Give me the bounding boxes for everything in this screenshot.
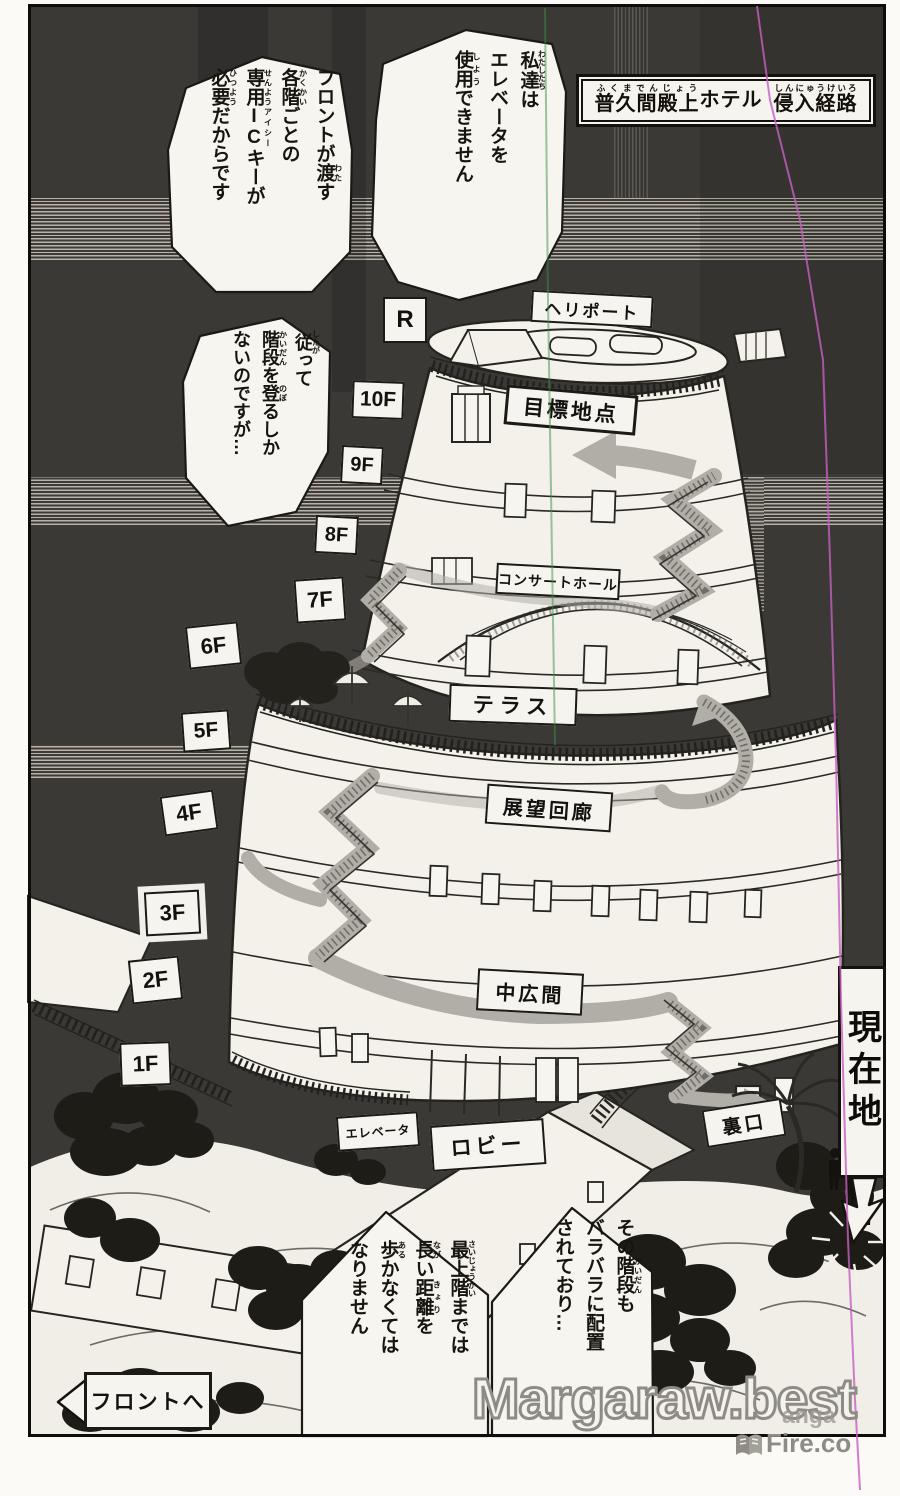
floor-label-1F: 1F <box>119 1041 172 1087</box>
watermark-site: Fire.co <box>734 1428 851 1459</box>
label-heliport: ヘリポート <box>530 290 654 328</box>
speech-bubble-ic-key: フロントが渡わたす各階かくかいごとの専用せんようICアイシーキーが必要ひつようだ… <box>176 68 344 290</box>
floor-label-3F: 3F <box>144 890 201 937</box>
floor-label-4F: 4F <box>159 789 218 836</box>
speech-bubble-stairs: 従したがって階段かいだんを登のぼるしかないのですが… <box>190 330 322 522</box>
manga-page: 普久間殿上ふくまでんじょうホテル 侵入経路しんにゅうけいろ R 10F 9F 8… <box>0 0 900 1496</box>
floor-label-6F: 6F <box>185 621 242 669</box>
label-current-location: 現在地 <box>838 966 886 1178</box>
label-terrace: テラス <box>448 684 577 726</box>
page-title: 普久間殿上ふくまでんじょうホテル 侵入経路しんにゅうけいろ <box>581 79 871 122</box>
floor-label-5F: 5F <box>181 709 232 752</box>
label-lobby: ロビー <box>430 1118 547 1172</box>
speech-bubble-elevator: 私達わたしたちはエレベータを使用しようできません <box>386 50 548 295</box>
floor-label-2F: 2F <box>128 955 183 1004</box>
speech-bubble-long-walk: 最上階さいじょうかいまでは長ながい距離きょりを歩あるかなくてはなりません <box>306 1240 478 1432</box>
floor-label-7F: 7F <box>294 576 347 623</box>
label-concert-hall: コンサートホール <box>495 563 620 600</box>
label-middle-hall: 中広間 <box>476 968 584 1015</box>
floor-label-9F: 9F <box>340 445 384 485</box>
mangafire-book-icon <box>734 1431 764 1457</box>
watermark-site-prefix: anga <box>782 1402 836 1429</box>
label-elevator: エレベータ <box>336 1111 420 1152</box>
floor-label-10F: 10F <box>351 380 404 420</box>
tower-upper-section <box>350 312 786 716</box>
floor-label-R: R <box>383 297 427 343</box>
watermark-site-text: Fire.co <box>766 1428 851 1459</box>
title-box: 普久間殿上ふくまでんじょうホテル 侵入経路しんにゅうけいろ <box>576 74 876 127</box>
label-to-front-desk: フロントへ <box>84 1372 212 1430</box>
